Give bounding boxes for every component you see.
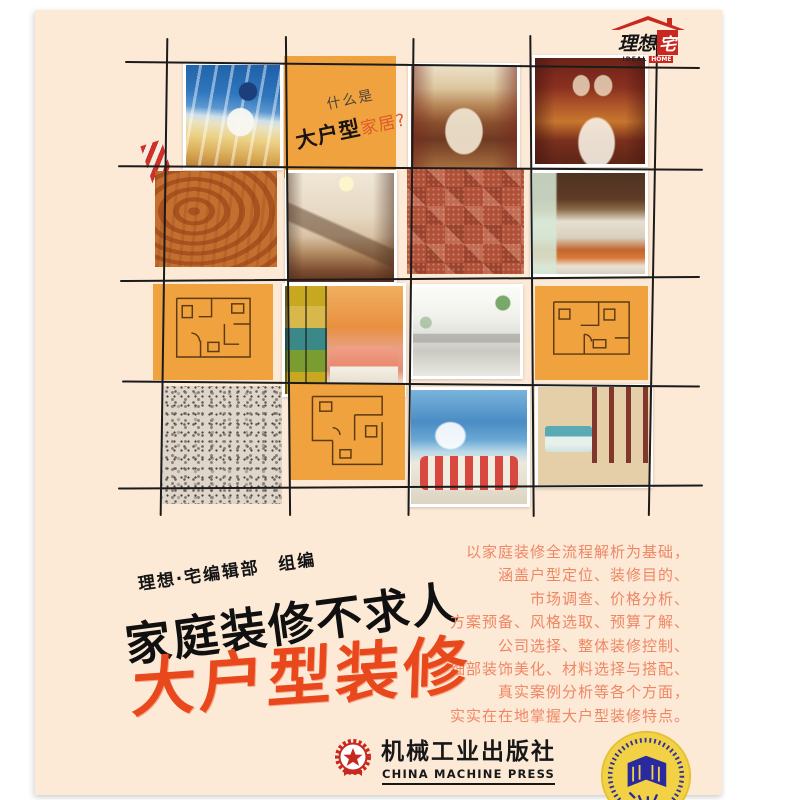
publisher-names: 机械工业出版社 CHINA MACHINE PRESS — [381, 732, 556, 785]
brand-name-suffix: 宅 — [657, 30, 678, 55]
publisher-block: 机械工业出版社 CHINA MACHINE PRESS — [332, 732, 556, 785]
publisher-name-en: CHINA MACHINE PRESS — [382, 767, 555, 785]
photo-dark-red-bedroom — [532, 55, 648, 167]
book-cover-photo: 理想宅 IDEAL HOME 什么是 大户型家居? — [0, 0, 800, 800]
floor-plan-b-drawing — [544, 293, 639, 374]
photo-staircase-dining — [285, 170, 397, 285]
stair-balusters-shape — [592, 387, 650, 463]
photo-spiral-staircase — [535, 384, 653, 488]
book-cover: 理想宅 IDEAL HOME 什么是 大户型家居? — [35, 10, 722, 795]
publisher-gear-icon — [332, 737, 374, 781]
blurb-line: 涵盖户型定位、装修目的、 — [450, 564, 690, 587]
blurb-line: 实实在在地掌握大户型装修特点。 — [450, 705, 690, 728]
photo-white-kitchen — [410, 284, 523, 379]
stained-glass-panel — [285, 286, 327, 394]
blurb-line: 细部装饰美化、材料选择与搭配、 — [450, 658, 690, 681]
blurb: 以家庭装修全流程解析为基础， 涵盖户型定位、装修目的、 市场调查、价格分析、 方… — [450, 541, 690, 728]
publisher-name-cn: 机械工业出版社 — [381, 732, 556, 766]
question-tile: 什么是 大户型家居? — [284, 56, 396, 178]
question-line2-bold: 大户型 — [293, 116, 363, 153]
question-line2: 大户型家居? — [293, 102, 409, 155]
question-text: 什么是 大户型家居? — [288, 79, 409, 155]
brand-tagline: IDEAL HOME — [605, 56, 691, 63]
photo-stained-glass-bedroom — [282, 283, 406, 397]
blurb-line: 方案预备、风格选取、预算了解、 — [450, 611, 690, 634]
floor-plan-a — [153, 284, 273, 380]
bed-shape — [330, 346, 398, 383]
brand-logo: 理想宅 IDEAL HOME — [605, 16, 691, 63]
floor-plan-b — [535, 286, 648, 380]
blurb-line: 市场调查、价格分析、 — [450, 588, 690, 611]
texture-terracotta-tile — [407, 168, 524, 274]
photo-santorini-painting — [183, 62, 283, 170]
photo-dining-room — [408, 63, 520, 171]
blurb-line: 公司选择、整体装修控制、 — [450, 635, 690, 658]
brand-tagline-left: IDEAL — [623, 56, 648, 63]
photo-blue-mediterranean-living — [408, 387, 530, 507]
brand-tagline-right: HOME — [649, 56, 673, 63]
brand-name-cn: 理想 — [618, 29, 656, 56]
floor-plan-c-drawing — [299, 391, 396, 474]
question-line2-tail: 家居? — [359, 110, 408, 139]
texture-wood-grain — [155, 171, 277, 267]
blurb-line: 以家庭装修全流程解析为基础， — [450, 541, 690, 564]
photo-living-room — [530, 170, 648, 277]
floor-plan-c — [290, 384, 405, 480]
bookstore-sticker — [600, 730, 692, 800]
brand-name: 理想宅 — [605, 29, 691, 56]
blurb-line: 真实案例分析等各个方面， — [450, 681, 690, 704]
floor-plan-a-drawing — [163, 291, 264, 374]
loft-rail-shape — [545, 426, 592, 451]
